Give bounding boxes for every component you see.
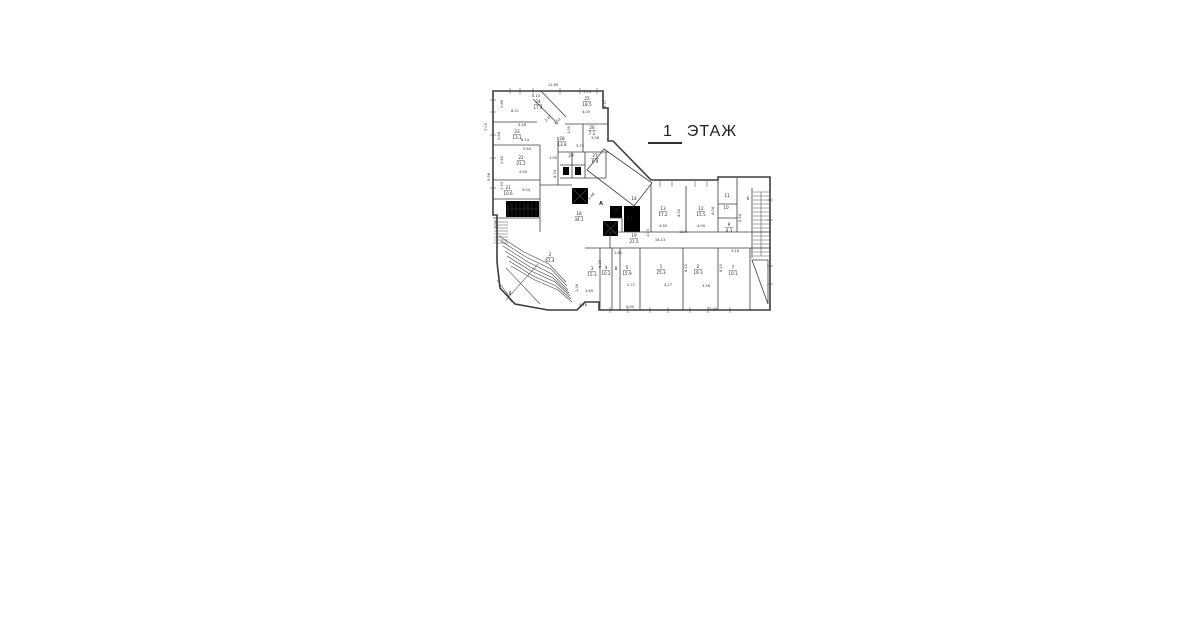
room-number: 21 [505, 185, 511, 190]
dimension-label: 1.03 [646, 229, 650, 237]
room-area: 19.3 [693, 270, 703, 275]
dimension-label: 13.44 [707, 307, 718, 311]
dimension-label: 7.03 [484, 123, 488, 131]
dimension-label: 3.06 [591, 136, 600, 140]
dimension-label: 3.37 [603, 100, 607, 108]
dimension-label: 3.48 [518, 123, 527, 127]
dimension-label: 1.26 [575, 283, 579, 292]
room-number: 9 [728, 222, 731, 227]
dimension-label: 4.78 [579, 303, 588, 307]
dimension-label: 6.29 [598, 259, 602, 268]
dimension-label: 4.50 [519, 170, 528, 174]
dimension-label: 16.13 [655, 238, 665, 242]
dimension-label: 1.93 [500, 182, 504, 190]
room-number: 8 [615, 266, 618, 271]
dimension-label: 2.84 [497, 131, 501, 140]
room-area: 25.3 [656, 270, 666, 275]
room-number: 7 [732, 265, 735, 270]
dimension-label: 12.89 [548, 83, 559, 87]
room-number: 5 [626, 265, 629, 270]
room-number: 12 [698, 206, 704, 211]
room-number: 26 [589, 125, 595, 130]
dimension-label: 6.14 [521, 138, 530, 142]
corner-staircase [752, 260, 768, 304]
room-number: 4 [605, 265, 608, 270]
dimension-label: 5.84 [523, 147, 532, 151]
room-area: 10.6 [503, 191, 513, 196]
dimension-label: 2.71 [627, 283, 635, 287]
dimension-label: 5.04 [522, 188, 531, 192]
dimension-label: 4.74 [553, 169, 557, 178]
dimension-label: 4.17 [664, 283, 672, 287]
dimension-label: 4.79 [494, 219, 498, 228]
dimension-label: 5.74 [583, 90, 592, 94]
section-letter: I [509, 291, 511, 297]
plan-labels: 2417.42518.52313.1267.12813.82221.229276… [484, 83, 750, 311]
room-area: 6.9 [592, 159, 599, 164]
dimension-label: 5.98 [487, 172, 491, 181]
room-area: 15.3 [587, 272, 597, 277]
dimension-label: 6.12 [684, 264, 688, 272]
room-number: 19 [631, 233, 637, 238]
room-number: 27 [592, 153, 598, 158]
room-number: 11 [724, 193, 730, 198]
scanned-floor-plan-page: 1ЭТАЖ [0, 0, 1200, 633]
room-area: 61.4 [545, 258, 555, 263]
room-area: 15.5 [696, 212, 706, 217]
room-number: 6 [747, 196, 750, 201]
dimension-label: 13.9 [679, 230, 688, 234]
room-area: 10.1 [728, 271, 738, 276]
room-area: 17.2 [658, 212, 668, 217]
dimension-label: 4.05 [582, 110, 590, 114]
dimension-label: 6.10 [719, 263, 723, 272]
dimension-label: 4.00 [697, 224, 706, 228]
room-number: 3 [591, 266, 594, 271]
room-number: 2 [697, 264, 700, 269]
room-area: 21.5 [629, 239, 639, 244]
dimension-label: 2.52 [553, 117, 561, 125]
room-number: 23 [514, 129, 520, 134]
dimension-label: 2.46 [587, 192, 596, 201]
room-number: 13 [660, 206, 666, 211]
dimension-label: 2.47 [544, 114, 552, 122]
room-area: 15.9 [622, 271, 632, 276]
room-area: 17.4 [533, 105, 543, 110]
dimension-label: 6.10 [532, 94, 541, 98]
dimension-label: 3.73 [576, 144, 584, 148]
floor-plan-drawing: 2417.42518.52313.1267.12813.82221.229276… [478, 78, 782, 322]
room-number: 25 [584, 96, 590, 101]
room-area: 21.2 [516, 161, 526, 166]
room-number: 28 [559, 136, 565, 141]
room-number: 29 [568, 153, 574, 158]
dimension-label: 3.18 [731, 249, 740, 253]
dimension-label: 4.92 [677, 209, 681, 217]
room-number: 2 [549, 252, 552, 257]
dimension-label: 2.54 [738, 213, 742, 222]
dimension-label: 8.51 [511, 109, 519, 113]
room-number: 17 [627, 216, 633, 221]
room-number: 24 [535, 99, 541, 104]
room-number: 16 [613, 208, 619, 213]
room-area: 13.8 [557, 142, 567, 147]
dimension-label: 3.52 [500, 156, 504, 164]
dimension-label: 4.04 [711, 206, 715, 215]
room-number: 10 [723, 205, 729, 210]
dimension-label: 5.90 [626, 305, 635, 309]
room-area: 18.5 [582, 102, 592, 107]
room-area: 4.3 [726, 228, 733, 233]
section-letter: А [599, 201, 603, 207]
dimension-label: 3.28 [702, 284, 711, 288]
dimension-label: 4.35 [659, 224, 667, 228]
room-number: 20 [524, 204, 530, 209]
dimension-label: 3.69 [585, 289, 594, 293]
dimension-label: 1.90 [567, 125, 571, 134]
dimension-label: 1.55 [549, 156, 557, 160]
room-area: 34.1 [574, 217, 584, 222]
dimension-label: 2.60 [614, 251, 623, 255]
room-number: 1 [660, 264, 663, 269]
room-number: 18 [576, 211, 582, 216]
dimension-label: 2.86 [500, 99, 504, 108]
room-number: 22 [518, 155, 524, 160]
room-area: 10.2 [601, 271, 611, 276]
room-number: 14 [631, 196, 637, 201]
